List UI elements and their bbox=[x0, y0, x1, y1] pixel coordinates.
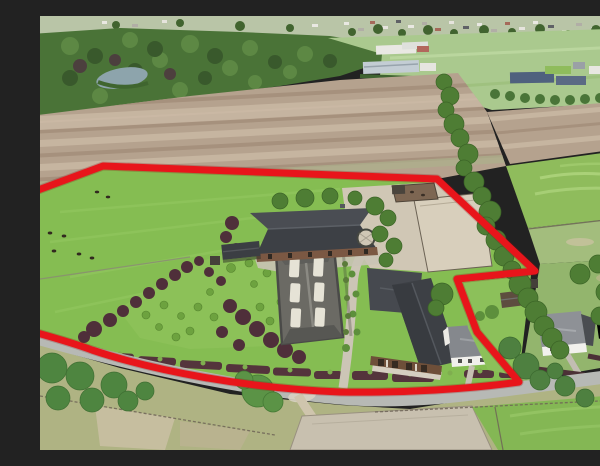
aerial-photo-figure bbox=[40, 16, 600, 450]
driveway-branch bbox=[468, 366, 472, 385]
horse-pen bbox=[392, 183, 438, 202]
aerial-photo bbox=[40, 16, 600, 450]
garden-hut bbox=[210, 256, 220, 265]
chimney bbox=[340, 204, 345, 208]
